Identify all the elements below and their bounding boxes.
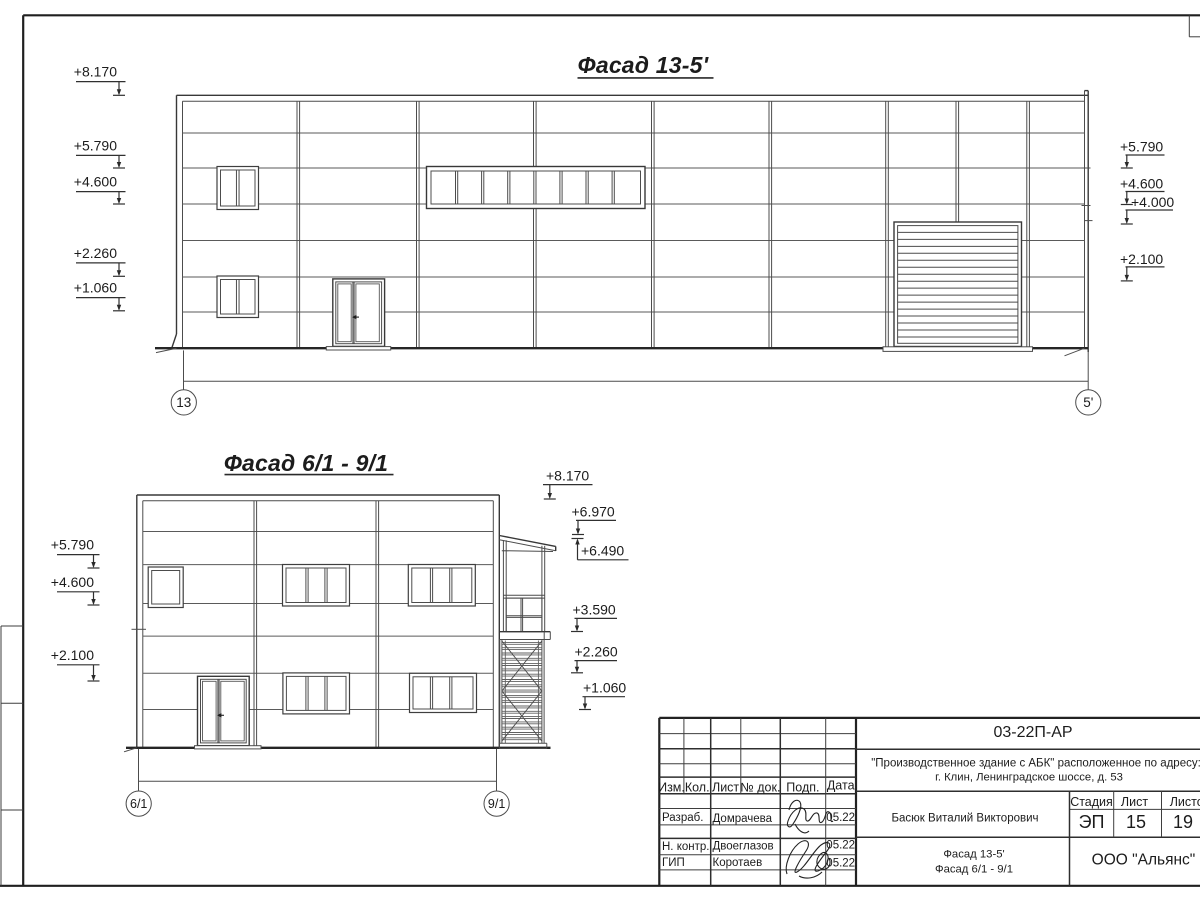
svg-text:+2.260: +2.260 — [74, 245, 117, 261]
svg-text:+8.170: +8.170 — [546, 468, 589, 484]
svg-text:+2.100: +2.100 — [1120, 251, 1163, 267]
svg-text:9/1: 9/1 — [488, 797, 505, 811]
svg-text:+3.590: +3.590 — [573, 602, 616, 618]
svg-text:+6.970: +6.970 — [572, 504, 615, 520]
svg-text:+4.000: +4.000 — [1131, 194, 1174, 210]
svg-text:+5.790: +5.790 — [74, 137, 117, 153]
svg-text:+2.260: +2.260 — [575, 644, 618, 660]
svg-text:15: 15 — [1126, 812, 1146, 832]
svg-text:+2.100: +2.100 — [51, 647, 94, 663]
svg-text:Фасад 6/1 - 9/1: Фасад 6/1 - 9/1 — [224, 450, 388, 476]
svg-text:Дата: Дата — [827, 778, 855, 792]
svg-text:Лист: Лист — [712, 780, 739, 794]
svg-text:+1.060: +1.060 — [74, 280, 117, 296]
svg-text:Листов: Листов — [1170, 795, 1200, 809]
svg-text:Басюк Виталий Викторович: Басюк Виталий Викторович — [891, 813, 1038, 825]
svg-text:ЭП: ЭП — [1079, 812, 1105, 832]
svg-text:+4.600: +4.600 — [51, 574, 94, 590]
svg-text:№ док.: № док. — [740, 780, 780, 794]
svg-text:г. Клин, Ленинградское шоссе,: г. Клин, Ленинградское шоссе, д. 53 — [935, 772, 1123, 784]
svg-text:19: 19 — [1173, 812, 1193, 832]
svg-text:Домрачева: Домрачева — [713, 813, 773, 825]
svg-text:Лист: Лист — [1121, 795, 1148, 809]
svg-text:ГИП: ГИП — [662, 857, 685, 869]
svg-text:Двоеглазов: Двоеглазов — [713, 841, 774, 853]
svg-text:+5.790: +5.790 — [51, 537, 94, 553]
svg-text:+4.600: +4.600 — [74, 174, 117, 190]
svg-text:+8.170: +8.170 — [74, 64, 117, 80]
svg-text:Фасад 6/1 - 9/1: Фасад 6/1 - 9/1 — [935, 864, 1013, 876]
svg-text:+4.600: +4.600 — [1120, 176, 1163, 192]
svg-text:+6.490: +6.490 — [581, 543, 624, 559]
svg-text:ООО "Альянс": ООО "Альянс" — [1092, 852, 1196, 869]
svg-text:Коротаев: Коротаев — [713, 857, 763, 869]
svg-text:Фасад 13-5': Фасад 13-5' — [943, 849, 1004, 861]
svg-text:Фасад 13-5': Фасад 13-5' — [578, 52, 710, 78]
svg-text:Кол.: Кол. — [685, 780, 710, 794]
svg-text:+1.060: +1.060 — [583, 680, 626, 696]
svg-text:Н. контр.: Н. контр. — [662, 841, 709, 853]
svg-text:03-22П-АР: 03-22П-АР — [993, 724, 1072, 741]
svg-text:05.22: 05.22 — [826, 840, 855, 852]
svg-text:Разраб.: Разраб. — [662, 812, 703, 824]
svg-text:13: 13 — [176, 395, 191, 410]
svg-text:"Производственное здание с АБК: "Производственное здание с АБК" располож… — [871, 758, 1200, 770]
svg-text:6/1: 6/1 — [130, 797, 147, 811]
svg-text:Стадия: Стадия — [1070, 795, 1113, 809]
svg-text:Изм.: Изм. — [658, 780, 685, 794]
svg-text:Подп.: Подп. — [786, 780, 819, 794]
svg-text:5': 5' — [1083, 395, 1093, 410]
svg-text:+5.790: +5.790 — [1120, 138, 1163, 154]
